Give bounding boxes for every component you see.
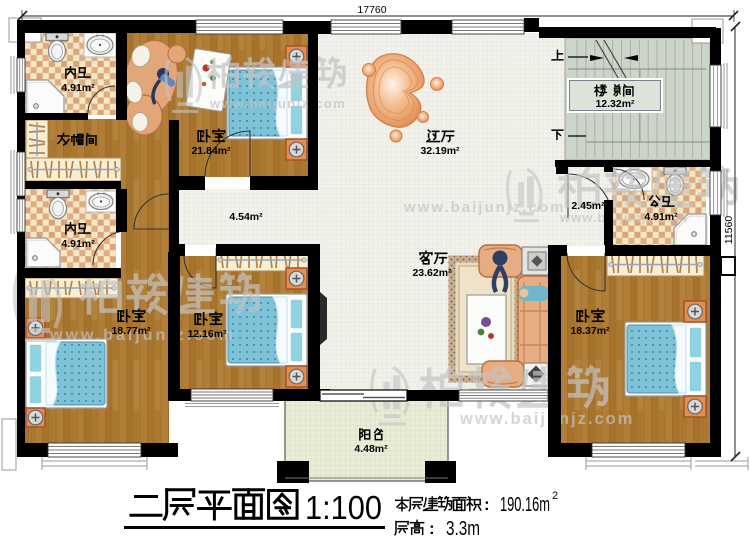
svg-text:2: 2 [552,490,558,502]
svg-text:17760: 17760 [357,4,386,16]
svg-text:www.baijunjz.com: www.baijunjz.com [403,199,565,216]
svg-text:190.16m: 190.16m [500,493,550,516]
svg-text:2.45m²: 2.45m² [571,200,605,212]
svg-text:12.16m²: 12.16m² [187,328,227,340]
svg-text:3.3m: 3.3m [446,517,480,540]
svg-text:4.91m²: 4.91m² [644,211,678,223]
svg-text:18.77m²: 18.77m² [111,325,151,337]
svg-text:4.48m²: 4.48m² [354,443,388,455]
svg-text:4.91m²: 4.91m² [61,82,95,94]
svg-text:12.32m²: 12.32m² [595,98,635,110]
svg-text:www.baijunjz.com: www.baijunjz.com [209,96,346,111]
svg-text:32.19m²: 32.19m² [420,145,460,157]
svg-text:www.baijunjz.com: www.baijunjz.com [459,410,634,428]
svg-text::: : [484,495,490,514]
svg-text:4.91m²: 4.91m² [61,238,95,250]
svg-text::: : [429,519,435,538]
svg-text:23.62m²: 23.62m² [412,267,452,279]
svg-text:1:100: 1:100 [305,489,382,526]
svg-text:4.54m²: 4.54m² [229,211,263,223]
svg-text:11560: 11560 [723,216,735,245]
svg-text:18.37m²: 18.37m² [570,325,610,337]
svg-text:21.84m²: 21.84m² [191,145,231,157]
